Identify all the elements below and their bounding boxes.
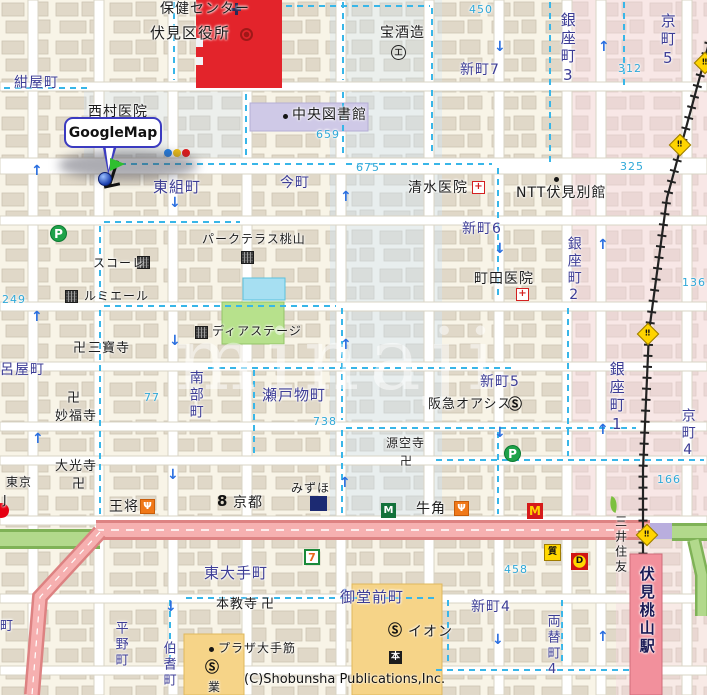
label-manji-myofukuji: 卍: [67, 392, 81, 406]
label-ginzacho3: 銀座町3: [559, 12, 575, 87]
seven-eleven-icon: 7: [304, 549, 320, 565]
label-shinmachi6: 新町6: [462, 222, 502, 237]
label-konyacho: 紺屋町: [14, 76, 59, 91]
ntt-dot-icon: [554, 177, 559, 182]
label-plaza-otesuji: プラザ大手筋: [218, 642, 296, 655]
map-canvas[interactable]: minaji GoogleMap (C)Shobunsha Publicatio…: [0, 0, 707, 695]
label-imamachi: 今町: [280, 176, 310, 191]
label-mizuho: みずほ: [291, 482, 330, 495]
block-number: 249: [2, 294, 26, 306]
one-way-arrow-icon: ↓: [165, 600, 177, 614]
label-ryogaecho4: 両替町4: [545, 614, 559, 680]
one-way-arrow-icon: ↓: [494, 242, 506, 256]
block-number: 312: [618, 63, 642, 75]
label-ginzacho1: 銀座町1: [608, 361, 624, 436]
label-schole: スコーレ: [93, 257, 145, 270]
label-hiranocho: 平野町: [113, 621, 127, 669]
label-shimizu-clinic: 清水医院: [408, 181, 468, 196]
label-nanbucho: 南部町: [188, 370, 203, 421]
pool-area: [243, 278, 285, 300]
block-number: 458: [504, 564, 528, 576]
one-way-arrow-icon: ↓: [169, 196, 181, 210]
mizuho-logo-block: [310, 496, 327, 511]
one-way-arrow-icon: ↑: [31, 310, 43, 324]
label-genkuji: 源空寺: [386, 437, 425, 450]
mcdonalds-icon: M: [527, 503, 543, 519]
one-way-arrow-icon: ↑: [597, 423, 609, 437]
mos-burger-icon: M: [381, 503, 396, 518]
callout-shadow: [58, 150, 198, 180]
label-honkyoji: 本教寺: [216, 598, 258, 612]
label-ohsho: 王将: [109, 500, 139, 515]
label-park-terrace: パークテラス桃山: [202, 233, 306, 246]
one-way-arrow-icon: ↑: [340, 190, 352, 204]
label-kyoto-bank: 京都: [233, 496, 263, 511]
one-way-arrow-icon: ↓: [167, 468, 179, 482]
label-gyo-partial: 業: [208, 681, 221, 694]
label-midomaecho: 御堂前町: [340, 590, 404, 606]
googlemap-callout-label: GoogleMap: [69, 125, 157, 141]
label-health-center: 保健センター: [160, 2, 250, 17]
label-manji-genkuji: 卍: [400, 455, 413, 468]
block-number: 77: [144, 392, 160, 404]
parking-icon: P: [50, 225, 67, 242]
block-number: 325: [620, 161, 644, 173]
label-j-partial: J: [3, 494, 8, 507]
label-takara-shuzo: 宝酒造: [380, 26, 425, 41]
label-hankyu-oasis: 阪急オアシス: [428, 398, 511, 412]
label-higashiotecho: 東大手町: [204, 566, 268, 582]
supermarket-icon-plaza: Ⓢ: [205, 661, 219, 675]
restaurant-icon-gyukaku: Ψ: [454, 501, 469, 516]
label-ward-office: 伏見区役所: [150, 26, 230, 42]
copyright-text: (C)Shobunsha Publications,Inc.: [244, 672, 445, 687]
label-manji-honkyoji: 卍: [261, 598, 275, 612]
label-aeon: イオン: [408, 625, 453, 640]
one-way-arrow-icon: ↑: [597, 630, 609, 644]
googlemap-callout[interactable]: GoogleMap: [64, 117, 162, 148]
label-sanpoji: 三寶寺: [88, 342, 130, 356]
label-kyomachi5: 京町5: [659, 13, 675, 70]
kyoto-bank-symbol: 8: [217, 494, 227, 509]
one-way-arrow-icon: ↑: [339, 476, 351, 490]
label-lumiere: ルミエール: [84, 290, 149, 303]
ward-office-symbol: [240, 28, 253, 41]
map-marker-flag-icon: [110, 158, 125, 171]
label-ginzacho2: 銀座町2: [566, 236, 581, 306]
label-shinmachi5: 新町5: [480, 375, 520, 390]
label-myofukuji: 妙福寺: [55, 410, 97, 424]
label-setomonocho: 瀬戸物町: [262, 388, 326, 404]
block-number: 675: [356, 162, 380, 174]
label-shinmachi7: 新町7: [460, 63, 500, 78]
label-cho-partial: 町: [0, 620, 14, 634]
bookstore-icon: 本: [389, 651, 402, 664]
map-marker-pin-icon[interactable]: [98, 172, 112, 186]
red-shop-icon: D: [571, 553, 588, 570]
label-manji-daikoji: 卍: [72, 478, 86, 492]
supermarket-icon-aeon: Ⓢ: [388, 624, 402, 638]
one-way-arrow-icon: ↓: [494, 426, 506, 440]
label-dia-stage: ディアステージ: [212, 325, 302, 338]
one-way-arrow-icon: ↑: [31, 164, 43, 178]
plaza-dot-icon: [209, 647, 214, 652]
hospital-icon-machida: +: [516, 288, 529, 301]
label-fushimi-momoyama-station: 伏見桃山駅: [638, 566, 654, 656]
label-tokyo-partial: 東京: [6, 476, 32, 489]
block-number: 136: [682, 277, 706, 289]
hospital-icon-shimizu: +: [472, 181, 485, 194]
one-way-arrow-icon: ↓: [492, 633, 504, 647]
label-machida-clinic: 町田医院: [474, 272, 534, 287]
block-number: 659: [316, 129, 340, 141]
library-dot-icon: [283, 114, 288, 119]
yellow-shop-icon: 質: [544, 544, 561, 561]
one-way-arrow-icon: ↓: [169, 334, 181, 348]
building-icon-dia-stage: [195, 326, 208, 339]
label-hokicho: 伯耆町: [161, 641, 175, 689]
building-icon-lumiere: [65, 290, 78, 303]
label-higashigumicho: 東組町: [153, 180, 201, 196]
restaurant-icon-ohsho: Ψ: [140, 499, 155, 514]
one-way-arrow-icon: ↓: [494, 40, 506, 54]
block-number: 450: [469, 4, 493, 16]
label-manji-sanpoji: 卍: [73, 342, 87, 356]
parking-icon: P: [504, 445, 521, 462]
label-central-library: 中央図書館: [292, 108, 367, 123]
one-way-arrow-icon: ↑: [598, 40, 610, 54]
label-gyukaku: 牛角: [416, 502, 446, 517]
one-way-arrow-icon: ↑: [32, 432, 44, 446]
block-number: 738: [313, 416, 337, 428]
label-daikoji: 大光寺: [55, 460, 97, 474]
building-icon-park-terrace: [241, 251, 254, 264]
block-number: 166: [657, 474, 681, 486]
label-shinmachi4: 新町4: [471, 600, 511, 615]
label-kyomachi4: 京町4: [680, 408, 695, 461]
label-mitsui-sumitomo: 三井住友: [614, 515, 627, 575]
label-royacho: 呂屋町: [0, 363, 45, 378]
factory-symbol-takara: 工: [391, 45, 406, 60]
label-ntt-fushimi: NTT伏見別館: [516, 186, 606, 201]
one-way-arrow-icon: ↑: [340, 338, 352, 352]
one-way-arrow-icon: ↑: [597, 238, 609, 252]
